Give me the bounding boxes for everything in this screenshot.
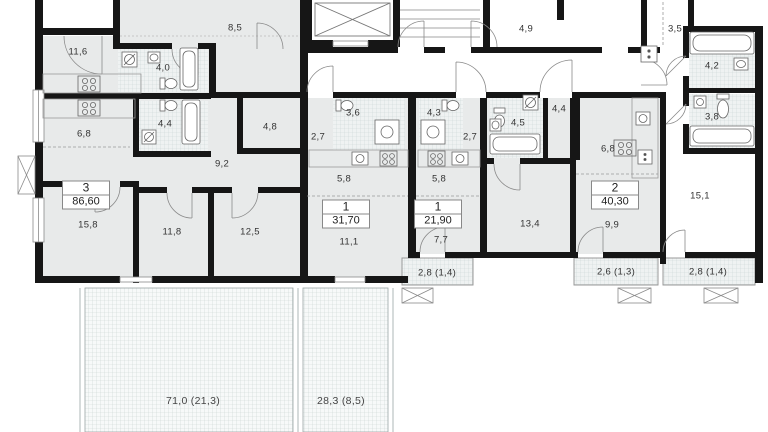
room-area-label: 11,6 <box>69 47 88 58</box>
room-area-label: 3,5 <box>668 24 682 35</box>
room-area-label: 8,5 <box>228 23 242 34</box>
floor-plan: 8,5 11,6 4,0 4,9 3,5 4,2 6,8 4,4 4,8 2,7… <box>0 0 768 432</box>
apartment-area: 86,60 <box>63 196 109 209</box>
toilet-icon <box>160 100 177 111</box>
apartment-stamp: 1 21,90 <box>414 200 462 229</box>
apartment-area: 40,30 <box>592 196 638 209</box>
balcony-area-label: 2,8 (1,4) <box>689 267 727 278</box>
washing-machine-icon <box>523 95 538 110</box>
room-area-label: 6,8 <box>77 129 91 140</box>
toilet-icon <box>160 78 177 89</box>
ac-unit-icon <box>618 288 651 303</box>
bathtub-icon <box>690 126 754 146</box>
apartment-area: 21,90 <box>415 215 461 228</box>
room-area-label: 11,1 <box>340 237 359 248</box>
balcony-area-label: 2,6 (1,3) <box>597 267 635 278</box>
sink-icon <box>352 152 368 165</box>
room-area-label: 9,9 <box>605 220 619 231</box>
room-area-label: 2,7 <box>311 132 325 143</box>
balcony-area-label: 2,8 (1,4) <box>418 268 456 279</box>
room-area-label: 4,0 <box>156 63 170 74</box>
room-area-label: 11,8 <box>163 227 182 238</box>
apartment-type: 2 <box>592 182 638 196</box>
shower-tray-icon <box>375 120 399 144</box>
terraces <box>80 288 393 432</box>
apartment-stamp: 1 31,70 <box>322 200 370 229</box>
sink-icon <box>636 112 650 125</box>
elevator-shaft-icon <box>315 3 390 36</box>
sink-icon <box>490 119 501 131</box>
toilet-icon <box>442 100 459 111</box>
room-area-label: 13,4 <box>520 219 540 230</box>
sink-icon <box>734 58 748 70</box>
room-area-label: 4,2 <box>705 61 719 72</box>
room-area-label: 4,8 <box>263 122 277 133</box>
room-area-label: 2,7 <box>463 132 477 143</box>
room-area-label: 4,3 <box>427 108 441 119</box>
sink-icon <box>452 152 468 165</box>
terrace-area-label: 28,3 (8,5) <box>317 395 365 407</box>
terrace-area-label: 71,0 (21,3) <box>166 395 220 407</box>
room-area-label: 5,8 <box>337 174 351 185</box>
ac-unit-icon <box>18 156 35 194</box>
sink-icon <box>148 52 160 63</box>
bathtub-icon <box>690 32 754 54</box>
room-area-label: 4,4 <box>552 104 566 115</box>
room-area-label: 3,8 <box>705 112 719 123</box>
bathtub-icon <box>180 48 198 90</box>
apartment-type: 1 <box>323 201 369 215</box>
bathtub-icon <box>490 134 540 154</box>
apartment-stamp: 3 86,60 <box>62 181 110 210</box>
apartment-area: 31,70 <box>323 215 369 228</box>
washing-machine-icon <box>122 52 137 67</box>
apartment-type: 1 <box>415 201 461 215</box>
room-area-label: 7,7 <box>434 235 448 246</box>
room-area-label: 6,8 <box>601 144 615 155</box>
apartment-type: 3 <box>63 182 109 196</box>
room-area-label: 15,1 <box>690 191 710 202</box>
room-area-label: 15,8 <box>78 220 98 231</box>
bathtub-icon <box>182 100 200 144</box>
room-area-label: 12,5 <box>240 227 260 238</box>
room-area-label: 5,8 <box>432 174 446 185</box>
room-area-label: 9,2 <box>215 159 229 170</box>
ac-unit-icon <box>402 288 433 303</box>
electrical-panel-icon <box>641 46 657 62</box>
floor-plan-drawing <box>0 0 768 432</box>
room-area-label: 4,4 <box>158 119 172 130</box>
apartment-stamp: 2 40,30 <box>591 181 639 210</box>
room-area-label: 4,9 <box>519 24 533 35</box>
room-area-label: 3,6 <box>346 108 360 119</box>
sink-icon <box>694 96 706 108</box>
electrical-panel-icon <box>638 150 652 164</box>
washing-machine-icon <box>142 130 156 144</box>
room-area-label: 4,5 <box>511 118 525 129</box>
shower-tray-icon <box>421 120 445 144</box>
ac-unit-icon <box>704 288 738 303</box>
